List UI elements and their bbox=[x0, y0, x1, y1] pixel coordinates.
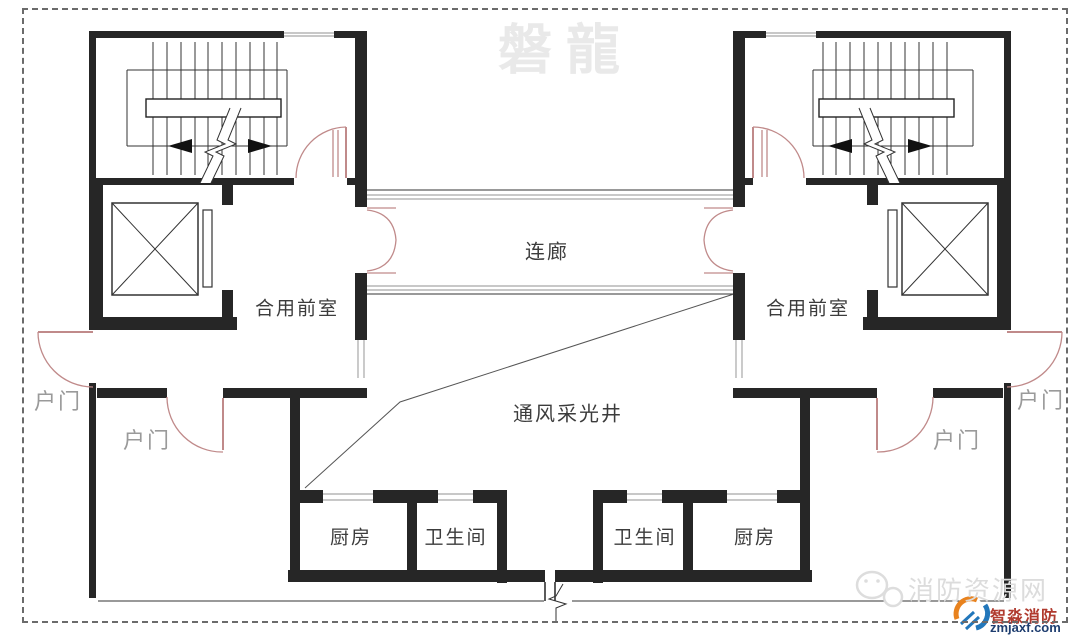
inner-entry-door-swing-left bbox=[167, 397, 223, 452]
front-room-window bbox=[736, 340, 742, 378]
inner-entry-door-swing-right bbox=[877, 397, 933, 452]
label-front-room-left: 合用前室 bbox=[255, 294, 339, 321]
corridor-door-right-leaves bbox=[704, 208, 733, 273]
stair-top-window bbox=[766, 33, 816, 36]
label-entry-door-outer-left: 户门 bbox=[34, 384, 82, 416]
site-watermark: 消防资源网 bbox=[908, 571, 1048, 608]
label-bathroom-right: 卫生间 bbox=[613, 523, 676, 550]
label-kitchen-left: 厨房 bbox=[330, 523, 372, 550]
label-corridor: 连廊 bbox=[525, 236, 569, 265]
bottom-break-line bbox=[549, 584, 566, 622]
floor-plan-page: 磐龍 bbox=[0, 0, 1080, 639]
corridor-door-left-leaves bbox=[367, 208, 396, 273]
left-front-room-walls bbox=[97, 130, 367, 398]
floor-plan-drawing bbox=[0, 0, 1080, 639]
stair-door-swing bbox=[753, 127, 804, 178]
stair-direction-arrow bbox=[908, 139, 932, 153]
elevator-door bbox=[888, 210, 897, 287]
label-light-well: 通风采光井 bbox=[513, 398, 623, 427]
stair-landing-rail bbox=[819, 99, 954, 117]
label-entry-door-outer-right: 户门 bbox=[1017, 383, 1065, 415]
left-stairwell bbox=[89, 31, 367, 207]
elevator-door bbox=[203, 210, 212, 287]
left-elevator bbox=[89, 185, 237, 330]
riser-marking bbox=[762, 130, 767, 177]
stair-direction-arrow bbox=[828, 139, 852, 153]
light-well-boundary bbox=[305, 293, 737, 488]
label-kitchen-right: 厨房 bbox=[734, 523, 776, 550]
riser-marking bbox=[333, 130, 338, 177]
outer-entry-door-swing-right bbox=[1007, 332, 1062, 387]
right-stairwell bbox=[733, 31, 1011, 207]
left-unit-walls bbox=[38, 332, 545, 598]
stair-landing-rail bbox=[146, 99, 281, 117]
corridor-door-right-swing bbox=[704, 210, 733, 271]
label-entry-door-inner-right: 户门 bbox=[933, 423, 981, 455]
logo-domain: zmjaxf.com bbox=[990, 620, 1061, 635]
front-room-window bbox=[358, 340, 364, 378]
label-front-room-right: 合用前室 bbox=[766, 294, 850, 321]
label-bathroom-left: 卫生间 bbox=[424, 523, 487, 550]
stair-direction-arrow bbox=[168, 139, 192, 153]
outer-entry-door-swing-left bbox=[38, 332, 93, 387]
right-elevator bbox=[863, 185, 1011, 330]
corridor-door-left-swing bbox=[367, 210, 396, 271]
label-entry-door-inner-left: 户门 bbox=[123, 423, 171, 455]
right-unit-walls bbox=[555, 332, 1062, 598]
stair-top-window bbox=[284, 33, 334, 36]
right-front-room-walls bbox=[733, 130, 1003, 398]
stair-direction-arrow bbox=[248, 139, 272, 153]
